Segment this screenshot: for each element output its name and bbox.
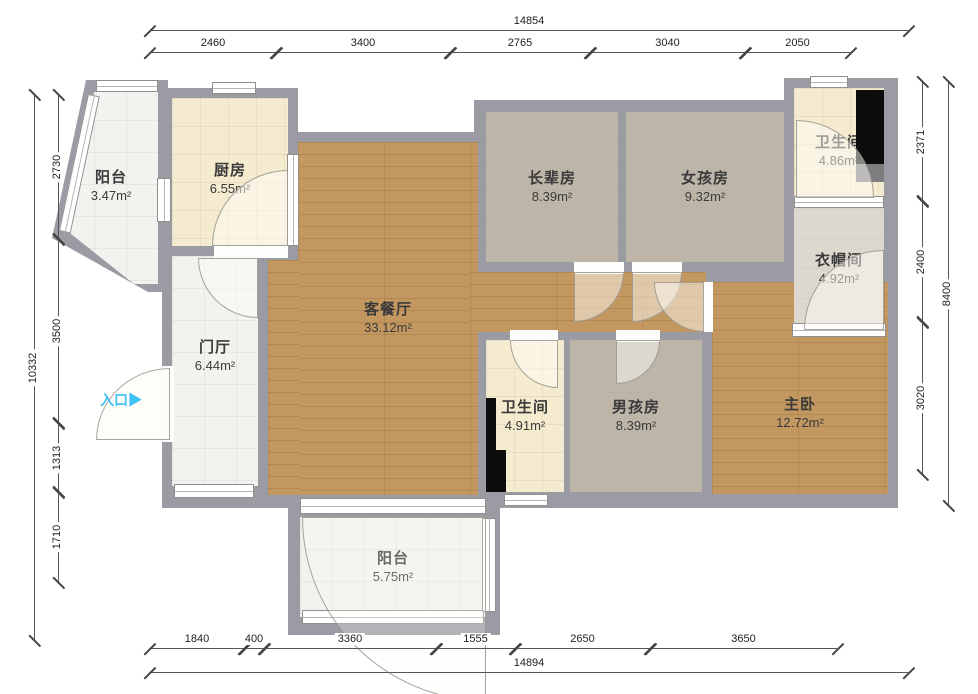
entrance-text: 入口 xyxy=(100,392,128,408)
fixture-bathroom-mid-2 xyxy=(486,450,506,492)
dim-bottom-seg: 2650 xyxy=(515,648,650,649)
room-name: 厨房 xyxy=(214,162,246,180)
room-area: 33.12m² xyxy=(364,320,412,336)
room-name: 卫生间 xyxy=(501,399,549,417)
dimension-label: 3360 xyxy=(335,633,365,645)
dimension-label: 2371 xyxy=(915,126,927,156)
sliding-door-balcony xyxy=(300,498,486,514)
room-name: 门厅 xyxy=(199,339,231,357)
floor-plan-canvas: 阳台 3.47m² 厨房 6.55m² 门厅 6.44m² 客餐厅 33.12m… xyxy=(0,0,978,694)
entrance-label: 入口▶ xyxy=(100,390,142,410)
doorway-master xyxy=(703,282,713,332)
dimension-label: 2730 xyxy=(51,152,63,182)
dim-right-seg: 2400 xyxy=(922,201,923,322)
dim-left-seg: 1313 xyxy=(58,423,59,492)
room-name: 阳台 xyxy=(95,169,127,187)
dim-bottom-seg: 1555 xyxy=(436,648,515,649)
dimension-label: 2765 xyxy=(505,37,535,49)
dimension-label: 8400 xyxy=(941,278,953,308)
room-name: 客餐厅 xyxy=(364,301,412,319)
dim-top-seg: 2765 xyxy=(450,52,590,53)
living-left-strip xyxy=(268,260,300,495)
door-arc-balcony-bottom xyxy=(302,517,486,694)
room-living-dining: 客餐厅 33.12m² xyxy=(298,142,478,495)
dim-right-seg: 2371 xyxy=(922,82,923,201)
dim-top-seg: 2050 xyxy=(745,52,850,53)
room-area: 9.32m² xyxy=(685,189,725,205)
dim-bottom-seg: 1840 xyxy=(150,648,244,649)
room-name: 女孩房 xyxy=(681,170,729,188)
dim-top-seg: 3400 xyxy=(276,52,450,53)
dimension-label: 2650 xyxy=(567,633,597,645)
window xyxy=(504,494,548,506)
dim-bottom-seg: 3650 xyxy=(650,648,837,649)
dimension-label: 3020 xyxy=(915,383,927,413)
window xyxy=(96,80,158,92)
sliding-door-kitchen xyxy=(287,154,299,246)
dimension-label: 14854 xyxy=(511,15,548,27)
room-area: 8.39m² xyxy=(616,418,656,434)
dimension-label: 14894 xyxy=(511,657,548,669)
dimension-label: 3040 xyxy=(652,37,682,49)
dim-top-total: 14854 xyxy=(150,30,908,31)
dimension-label: 2050 xyxy=(782,37,812,49)
dim-top-seg: 3040 xyxy=(590,52,745,53)
dimension-label: 2400 xyxy=(915,246,927,276)
dimension-label: 1840 xyxy=(182,633,212,645)
dim-left-seg: 3500 xyxy=(58,239,59,423)
room-area: 4.91m² xyxy=(505,418,545,434)
dim-top-seg: 2460 xyxy=(150,52,276,53)
dimension-label: 2460 xyxy=(198,37,228,49)
room-area: 12.72m² xyxy=(776,415,824,431)
dimension-label: 10332 xyxy=(27,349,39,386)
dimension-label: 1313 xyxy=(51,442,63,472)
dim-bottom-total: 14894 xyxy=(150,672,908,673)
window xyxy=(212,82,256,94)
fixture-bathroom-mid-1 xyxy=(486,398,496,450)
room-girl: 女孩房 9.32m² xyxy=(626,112,784,262)
dimension-label: 1555 xyxy=(460,633,490,645)
dim-left-total: 10332 xyxy=(34,95,35,640)
dim-right-seg: 3020 xyxy=(922,322,923,474)
window xyxy=(810,76,848,88)
dimension-label: 3400 xyxy=(348,37,378,49)
dim-right-total: 8400 xyxy=(948,82,949,505)
room-elder: 长辈房 8.39m² xyxy=(486,112,618,262)
room-name: 主卧 xyxy=(784,396,816,414)
dimension-label: 400 xyxy=(242,633,266,645)
dimension-label: 3650 xyxy=(728,633,758,645)
dim-left-seg: 2730 xyxy=(58,95,59,239)
dimension-label: 3500 xyxy=(51,316,63,346)
window xyxy=(157,178,171,222)
room-area: 6.44m² xyxy=(195,358,235,374)
dim-bottom-seg: 3360 xyxy=(264,648,436,649)
window xyxy=(174,484,254,498)
dimension-label: 1710 xyxy=(51,522,63,552)
dim-left-seg: 1710 xyxy=(58,492,59,582)
room-area: 8.39m² xyxy=(532,189,572,205)
doorway-kitchen xyxy=(214,246,288,258)
room-name: 长辈房 xyxy=(528,170,576,188)
entrance-arrow-icon: ▶ xyxy=(128,392,142,408)
room-area: 3.47m² xyxy=(91,188,131,204)
room-name: 男孩房 xyxy=(612,399,660,417)
